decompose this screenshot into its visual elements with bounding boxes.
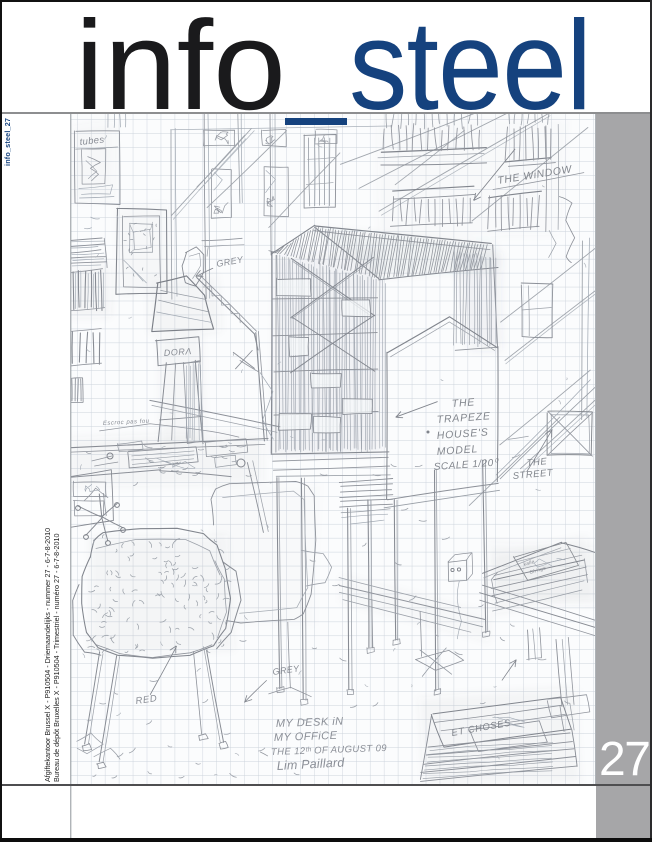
svg-text:MY DESK iN: MY DESK iN [276, 716, 344, 730]
svg-text:THE: THE [451, 396, 475, 410]
svg-text:MY OFFiCE: MY OFFiCE [274, 730, 338, 744]
svg-text:DORΛ: DORΛ [163, 346, 192, 358]
